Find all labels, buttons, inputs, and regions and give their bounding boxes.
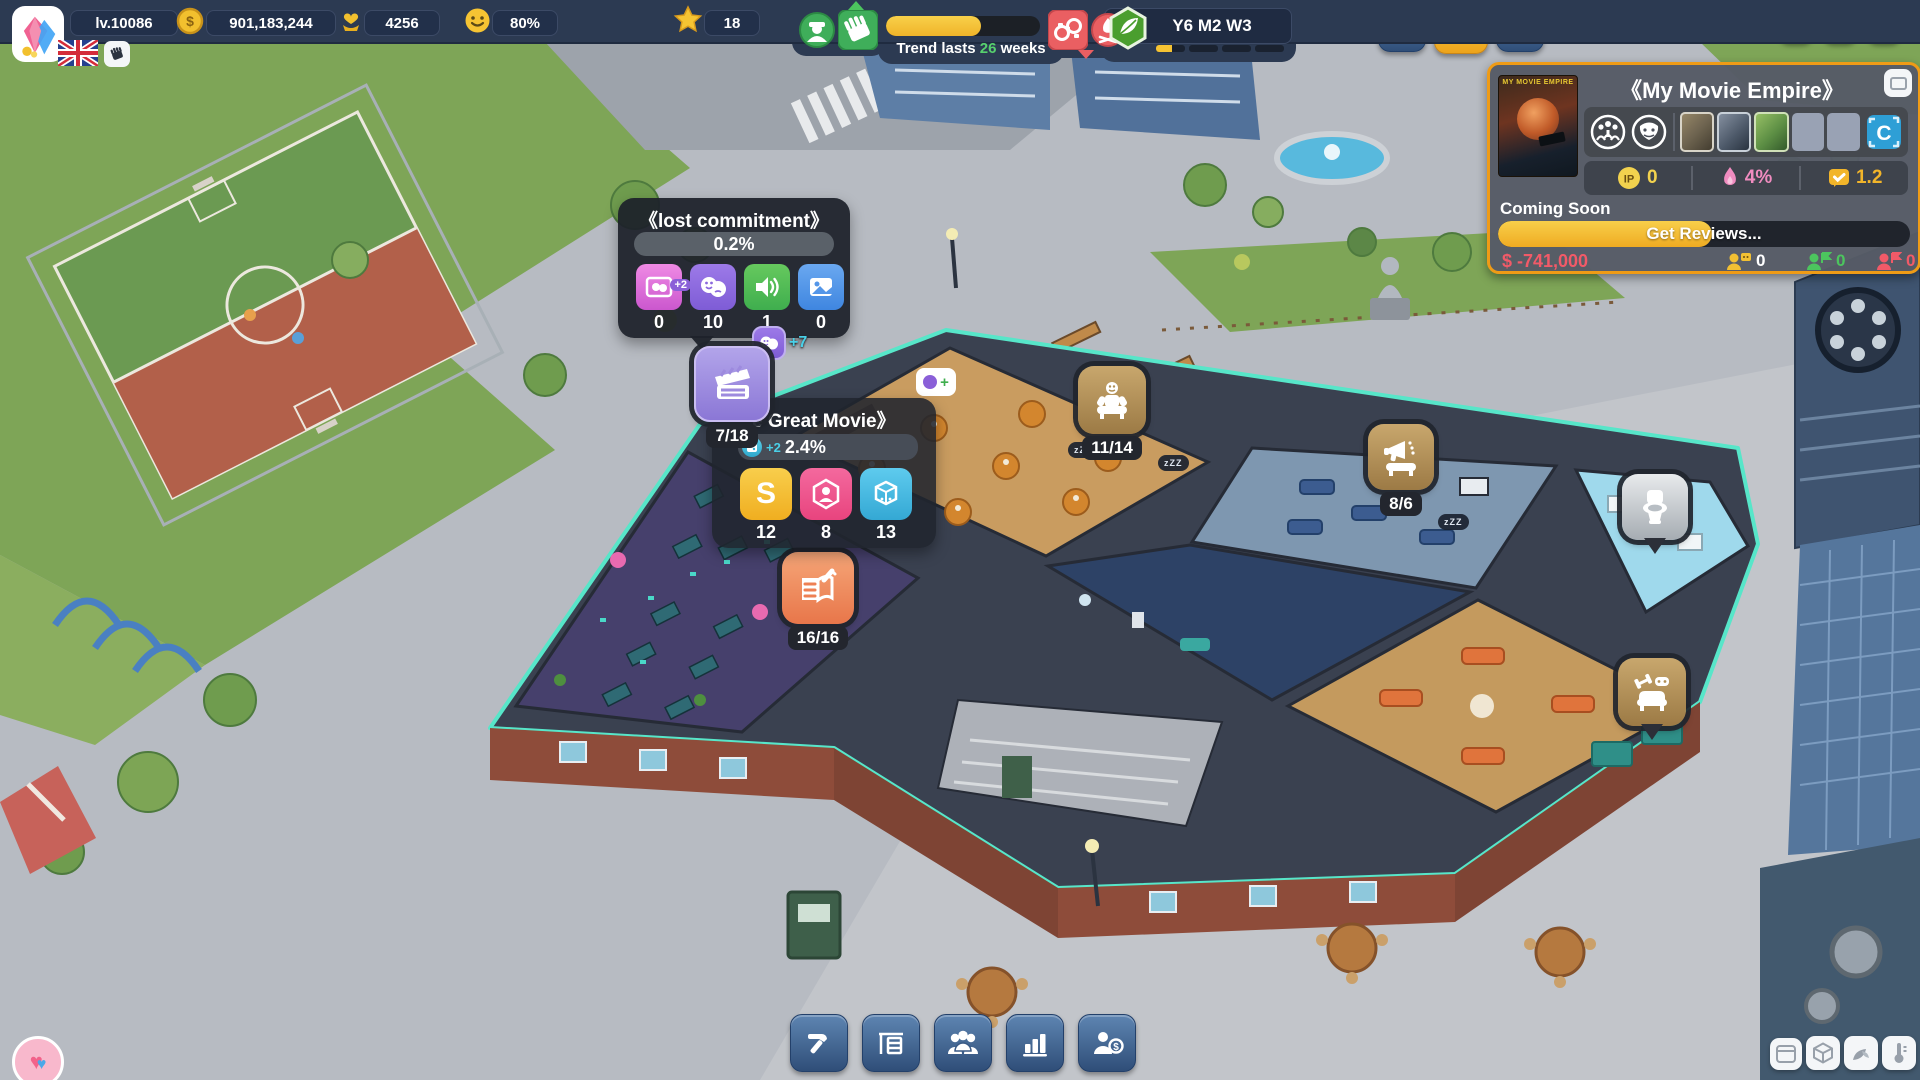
clapperboard-icon [694,346,770,422]
ip-icon: IP [1617,166,1641,190]
movie-title: 《My Movie Empire》 [1582,73,1882,105]
staff-avatar-dot [923,375,937,389]
popularity-flame-icon [1720,166,1740,190]
scene-thumb-helicopter[interactable] [1717,112,1751,152]
script-icon: S [740,468,792,520]
c-class-badge: C [1865,113,1903,151]
staff-request-bubble[interactable]: + [916,368,956,396]
star-icon [672,4,704,36]
build-rooms-button[interactable] [790,1014,848,1072]
week-progress-fill [1156,45,1172,52]
recreation-icon [1618,658,1686,726]
genre-drama-icon[interactable] [1630,113,1668,151]
viewers-green: 0 [1806,251,1845,271]
writing-icon [782,552,854,624]
marker-pin [1644,538,1666,554]
image-icon [798,264,844,310]
poster-title: MY MOVIE EMPIRE [1499,79,1577,86]
room-capacity: 11/14 [1082,436,1142,460]
room-capacity: 16/16 [788,626,849,650]
stat-value: 10 [690,312,736,333]
viewers-red: 0 [1876,251,1915,271]
room-capacity: 8/6 [1380,492,1422,516]
room-marker-canteen[interactable]: 11/14 [1078,366,1146,460]
trend-progress-bar [886,16,1040,36]
stars-pill: 18 [704,10,760,36]
stat-value: 13 [863,522,909,543]
sleep-badge: zZZ [1438,514,1469,530]
overlay-plants-button[interactable] [1844,1036,1878,1070]
empty-scene-slot[interactable] [1792,113,1825,151]
reviews-progress-bar[interactable]: Get Reviews... [1498,221,1910,247]
game-screen: zZZ zZZ zZZ + +7 《lost commitment》 0.2% … [0,0,1920,1080]
game-logo[interactable] [12,6,64,62]
week-progress [1156,45,1288,52]
commitment-percent: 0.2% [634,232,834,256]
coin-icon: $ [176,7,204,35]
genre-audience-icon[interactable] [1589,113,1627,151]
stat-value: 0 [636,312,682,333]
movie-status: Coming Soon [1500,199,1610,219]
trend-label: Trend lasts 26 weeks [878,40,1064,57]
megaphone-icon [1368,424,1434,490]
incident-handcuffs-icon[interactable] [1048,10,1088,50]
tooltip-title: e Great Movie》 [752,406,896,433]
viewers-yellow: 0 [1726,251,1765,271]
trend-weeks-value: 26 [980,40,997,57]
toilet-icon [1622,474,1688,540]
ip-value: 0 [1647,167,1658,189]
trend-progress-fill [886,16,981,36]
movie-stats-row: IP 0 4% 1.2 [1584,161,1908,195]
canteen-icon [1078,366,1146,434]
overlay-temperature-button[interactable] [1882,1036,1916,1070]
review-check-icon [1827,166,1851,190]
drama-buff-value: +7 [789,334,807,352]
svg-text:IP: IP [1624,174,1634,186]
movie-poster: MY MOVIE EMPIRE [1498,75,1578,177]
svg-text:$: $ [186,13,194,29]
movie-budget: $ -741,000 [1502,251,1588,272]
plus-icon: + [940,374,949,391]
date-value: Y6 M2 W3 [1172,16,1251,36]
review-score-value: 1.2 [1856,167,1882,189]
studio-icon [860,468,912,520]
overlay-objects-button[interactable] [1806,1036,1840,1070]
room-marker-production[interactable]: 7/18 [694,346,770,448]
row-divider [1673,113,1675,151]
statistics-button[interactable] [1006,1014,1064,1072]
reviews-progress-label: Get Reviews... [1498,224,1910,244]
sleep-badge: zZZ [1158,455,1189,471]
incident-down-arrow-icon [1078,50,1094,59]
marker-pin [1641,724,1663,740]
language-flag-uk[interactable] [58,40,98,66]
trend-police-icon[interactable] [798,11,836,49]
scene-thumb-building[interactable] [1680,112,1714,152]
tooltip-title: 《lost commitment》 [618,206,850,233]
trend-up-arrow-icon [848,1,864,10]
trend-fist-icon[interactable] [838,10,878,50]
audio-icon [744,264,790,310]
staff-button[interactable] [934,1014,992,1072]
svg-text:$: $ [1113,1042,1119,1053]
fans-heart-icon [338,7,364,35]
finance-staff-button[interactable]: $ [1078,1014,1136,1072]
drama-masks-icon [690,264,736,310]
empty-scene-slot[interactable] [1827,113,1860,151]
level-pill: lv.10086 [70,10,178,36]
scene-thumb-forest[interactable] [1754,112,1788,152]
movie-production-panel[interactable]: MY MOVIE EMPIRE 《My Movie Empire》 C IP 0 [1487,62,1920,274]
room-marker-writing[interactable]: 16/16 [782,552,854,650]
tooltip-lost-commitment: 《lost commitment》 0.2% +2 0 10 1 0 [618,198,850,338]
room-marker-recreation[interactable] [1618,658,1686,726]
scene-masks-icon: +2 [636,264,682,310]
happiness-smiley-icon [464,7,491,34]
stat-value: 8 [803,522,849,543]
overlay-walls-button[interactable] [1770,1038,1802,1070]
protest-fist-button[interactable] [104,41,130,67]
happiness-pill: 80% [492,10,558,36]
movie-percent: 2.4% [785,437,826,458]
room-marker-toilet[interactable] [1622,474,1688,540]
season-leaf-icon [1106,6,1150,50]
cast-icon [800,468,852,520]
stat-value: 12 [743,522,789,543]
c-class-letter: C [1876,122,1891,145]
social-hearts-button[interactable]: ♥ ♥ [12,1036,64,1080]
panel-close-button[interactable] [1884,69,1912,97]
room-marker-marketing[interactable]: 8/6 [1368,424,1434,516]
money-pill: 901,183,244 [206,10,336,36]
movie-elements-row: C [1584,107,1908,157]
stat-badge: +2 [670,279,691,291]
fans-pill: 4256 [364,10,440,36]
room-capacity: 7/18 [706,424,757,448]
furniture-button[interactable] [862,1014,920,1072]
popularity-value: 4% [1745,167,1772,189]
